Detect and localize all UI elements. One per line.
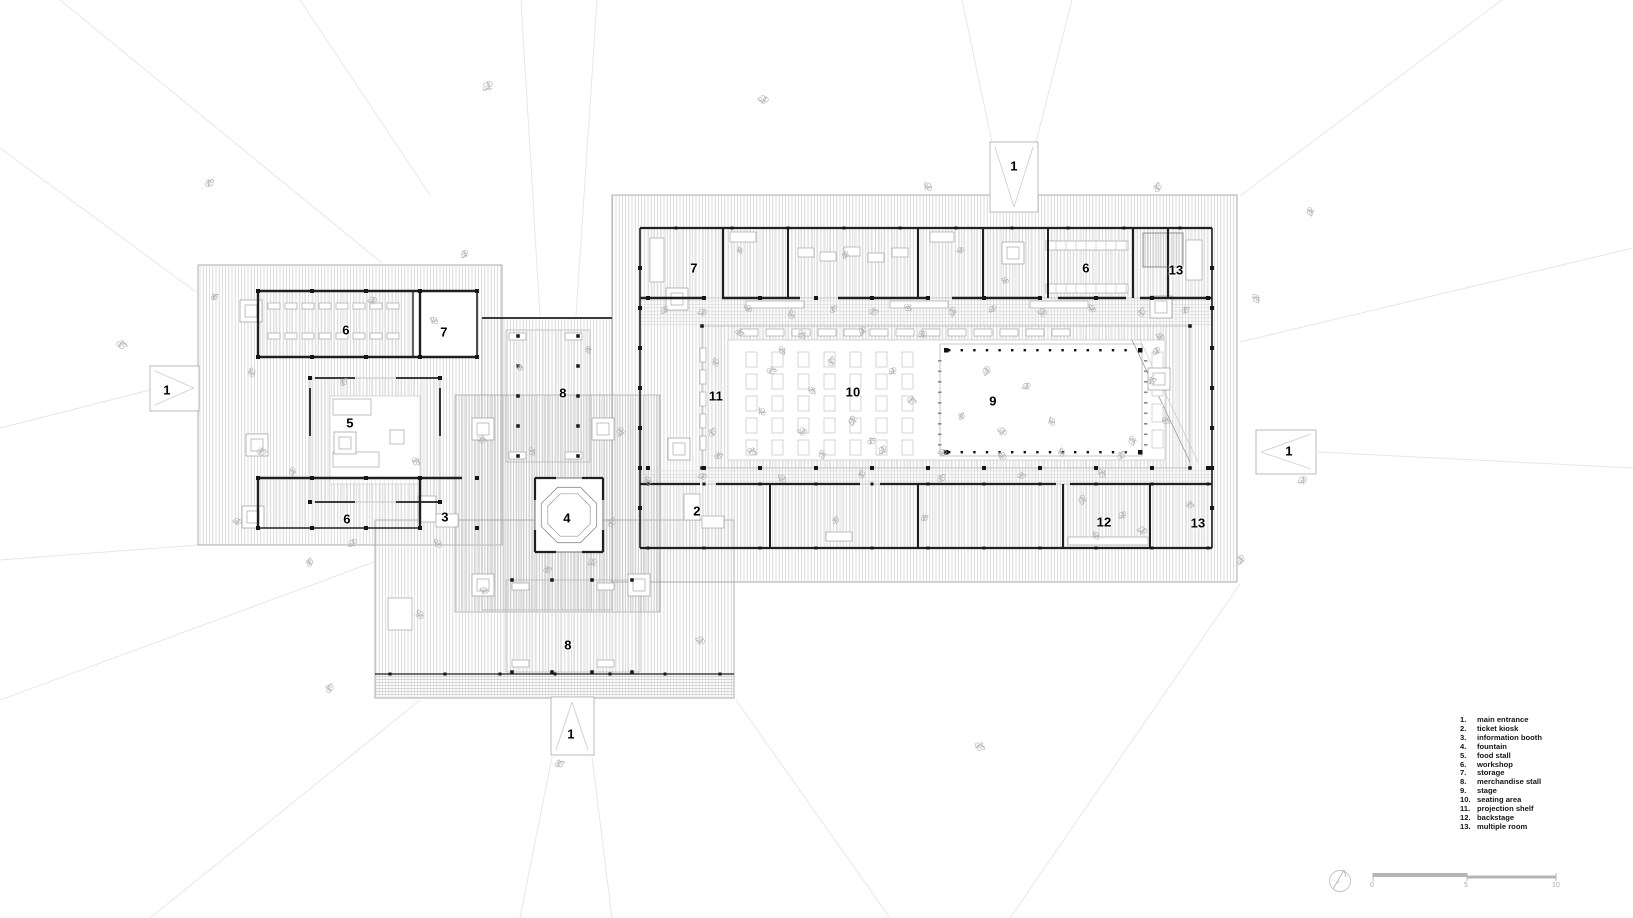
- entrance-number-label: 1: [1010, 159, 1017, 174]
- north-compass-icon: [1330, 870, 1351, 892]
- room-number-label: 2: [693, 504, 700, 519]
- scale-bar: [1373, 873, 1557, 881]
- floor-plan-canvas: 67563848761311109212131111 1.main entran…: [0, 0, 1633, 918]
- room-number-label: 13: [1169, 263, 1184, 278]
- room-number-label: 7: [690, 261, 697, 276]
- room-number-label: 6: [343, 512, 350, 527]
- room-number-label: 3: [441, 510, 448, 525]
- room-number-label: 13: [1191, 516, 1206, 531]
- floor-plan-drawing: [0, 0, 1633, 918]
- legend: 1.main entrance2.ticket kiosk3.informati…: [1460, 716, 1610, 832]
- room-number-label: 7: [440, 325, 447, 340]
- room-number-label: 10: [846, 385, 861, 400]
- scale-tick-label: 10: [1552, 882, 1560, 889]
- room-number-label: 12: [1097, 515, 1112, 530]
- scale-tick-label: 5: [1464, 882, 1468, 889]
- room-number-label: 5: [346, 416, 353, 431]
- room-number-label: 9: [989, 394, 996, 409]
- room-number-label: 8: [559, 386, 566, 401]
- legend-item: 13.multiple room: [1460, 823, 1610, 832]
- room-number-label: 6: [342, 323, 349, 338]
- room-number-label: 8: [564, 638, 571, 653]
- legend-item-label: multiple room: [1477, 823, 1527, 832]
- room-number-label: 4: [563, 511, 570, 526]
- scale-tick-label: 0: [1370, 882, 1374, 889]
- legend-item-number: 13.: [1460, 823, 1477, 832]
- room-number-label: 6: [1082, 261, 1089, 276]
- entrance-number-label: 1: [567, 727, 574, 742]
- room-number-label: 11: [709, 389, 723, 404]
- entrance-number-label: 1: [1285, 444, 1292, 459]
- entrance-number-label: 1: [163, 383, 170, 398]
